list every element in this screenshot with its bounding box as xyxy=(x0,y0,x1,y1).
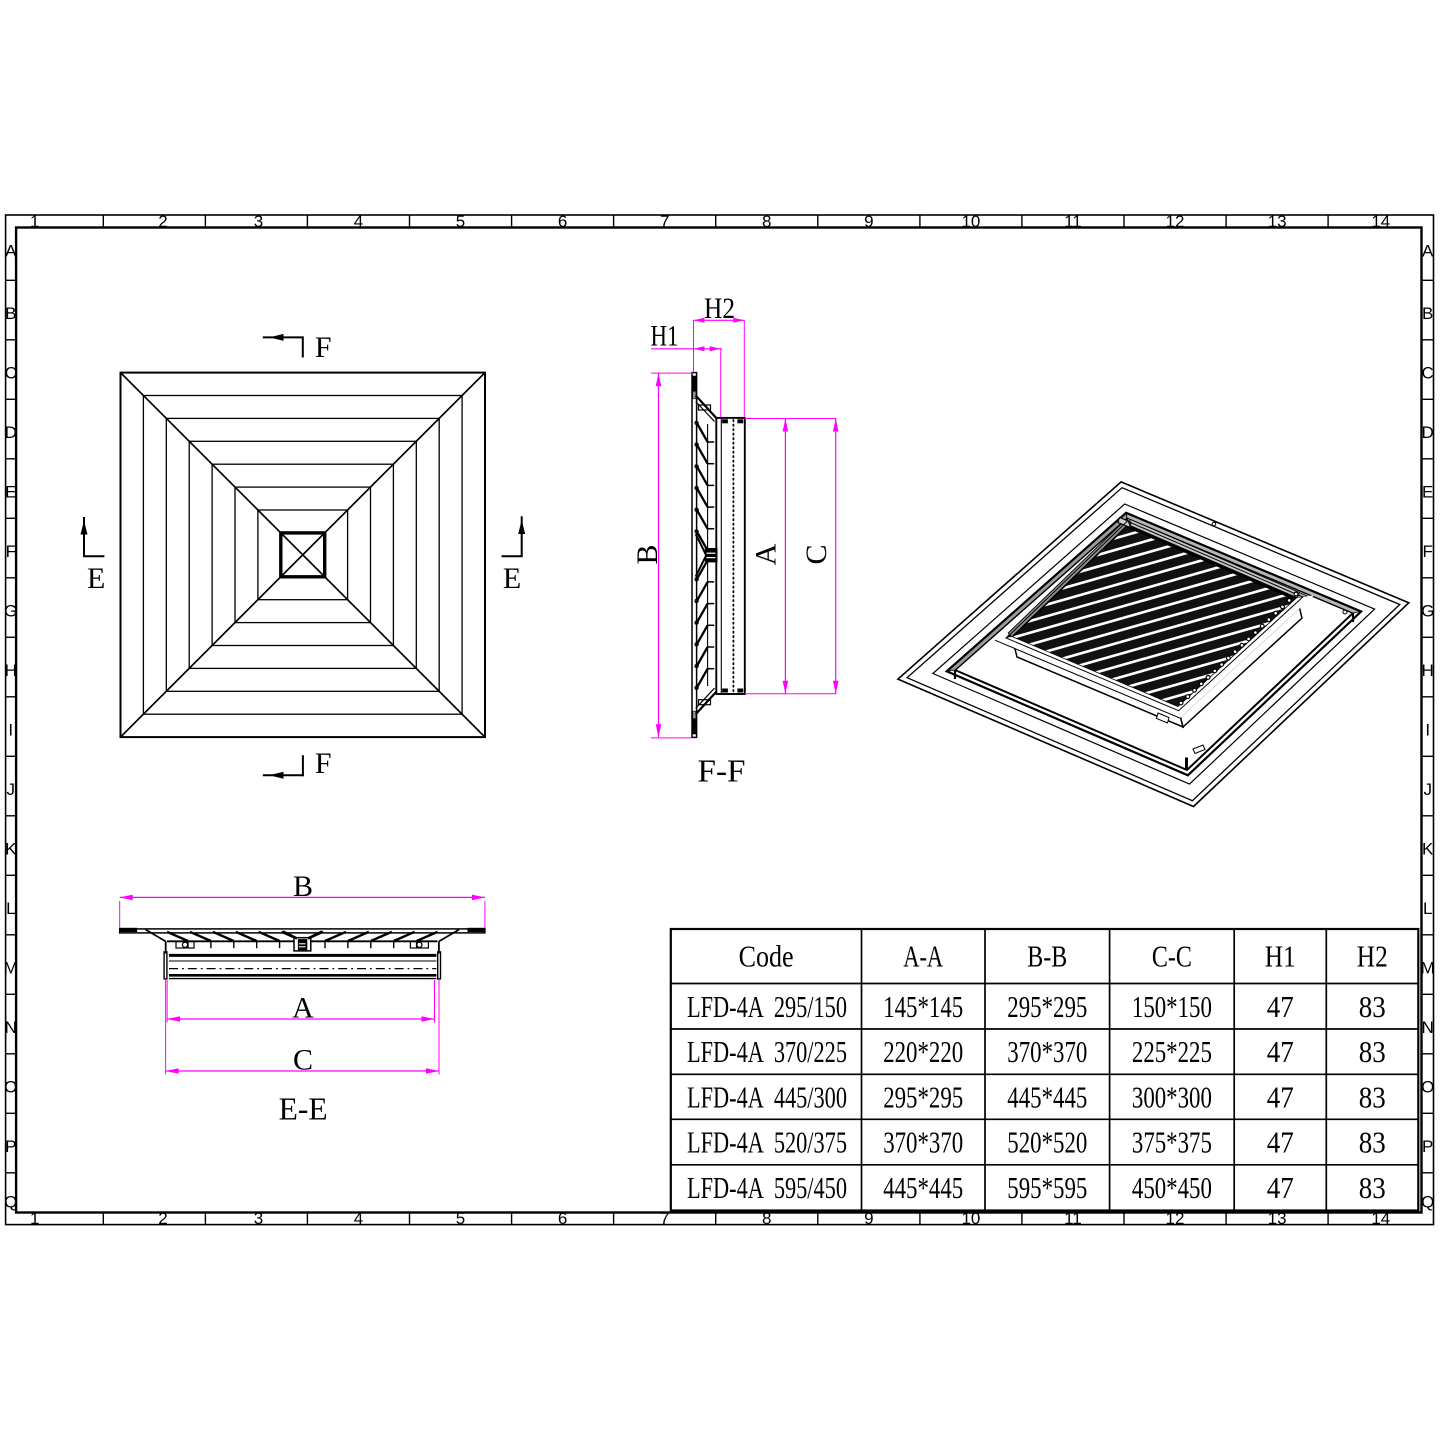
svg-text:P: P xyxy=(1422,1137,1433,1156)
svg-text:E: E xyxy=(503,562,521,595)
svg-text:450*450: 450*450 xyxy=(1132,1170,1212,1205)
svg-text:2: 2 xyxy=(158,1209,167,1228)
svg-text:E: E xyxy=(1422,483,1433,502)
svg-text:14: 14 xyxy=(1371,1209,1390,1228)
svg-text:83: 83 xyxy=(1359,1079,1386,1114)
svg-text:B: B xyxy=(5,304,16,323)
svg-text:6: 6 xyxy=(558,1209,567,1228)
svg-text:47: 47 xyxy=(1267,989,1294,1024)
svg-text:I: I xyxy=(1425,721,1430,740)
svg-text:B-B: B-B xyxy=(1027,939,1067,974)
svg-text:445*445: 445*445 xyxy=(1007,1079,1087,1114)
svg-text:LFD-4A 595/450: LFD-4A 595/450 xyxy=(687,1170,847,1205)
svg-text:H1: H1 xyxy=(651,320,679,353)
svg-text:B: B xyxy=(1422,304,1433,323)
svg-text:D: D xyxy=(5,423,17,442)
svg-text:370*370: 370*370 xyxy=(1007,1034,1087,1069)
svg-text:M: M xyxy=(4,959,18,978)
svg-text:LFD-4A 520/375: LFD-4A 520/375 xyxy=(687,1125,847,1160)
svg-text:N: N xyxy=(1422,1018,1434,1037)
svg-text:C: C xyxy=(5,364,17,383)
svg-text:10: 10 xyxy=(961,212,980,231)
svg-text:12: 12 xyxy=(1166,212,1185,231)
svg-text:F: F xyxy=(6,542,16,561)
svg-text:G: G xyxy=(4,602,17,621)
svg-text:E: E xyxy=(87,562,105,595)
svg-text:295*295: 295*295 xyxy=(1007,989,1087,1024)
svg-text:220*220: 220*220 xyxy=(883,1034,963,1069)
svg-text:A: A xyxy=(1422,242,1434,261)
svg-text:5: 5 xyxy=(456,212,465,231)
svg-text:I: I xyxy=(8,721,13,740)
svg-text:B: B xyxy=(631,544,664,564)
svg-text:3: 3 xyxy=(254,1209,263,1228)
svg-text:83: 83 xyxy=(1359,1170,1386,1205)
svg-text:6: 6 xyxy=(558,212,567,231)
svg-text:H2: H2 xyxy=(1357,939,1388,974)
svg-text:83: 83 xyxy=(1359,1125,1386,1160)
svg-text:M: M xyxy=(1421,959,1435,978)
svg-text:47: 47 xyxy=(1267,1125,1294,1160)
svg-text:11: 11 xyxy=(1064,212,1082,231)
svg-text:7: 7 xyxy=(660,212,669,231)
svg-text:9: 9 xyxy=(864,1209,873,1228)
svg-text:K: K xyxy=(5,840,17,859)
svg-text:L: L xyxy=(6,899,15,918)
svg-text:445*445: 445*445 xyxy=(883,1170,963,1205)
svg-text:4: 4 xyxy=(354,212,363,231)
svg-text:LFD-4A 370/225: LFD-4A 370/225 xyxy=(687,1034,847,1069)
svg-text:300*300: 300*300 xyxy=(1132,1079,1212,1114)
svg-text:A-A: A-A xyxy=(903,939,943,974)
svg-text:520*520: 520*520 xyxy=(1007,1125,1087,1160)
svg-text:370*370: 370*370 xyxy=(883,1125,963,1160)
svg-text:C: C xyxy=(1422,364,1434,383)
svg-text:145*145: 145*145 xyxy=(883,989,963,1024)
svg-text:10: 10 xyxy=(961,1209,980,1228)
svg-text:Q: Q xyxy=(1421,1193,1434,1212)
svg-text:C: C xyxy=(293,1044,313,1077)
svg-text:C: C xyxy=(800,544,833,564)
svg-text:13: 13 xyxy=(1268,212,1287,231)
svg-text:LFD-4A 445/300: LFD-4A 445/300 xyxy=(687,1079,847,1114)
svg-text:7: 7 xyxy=(660,1209,669,1228)
svg-text:F-F: F-F xyxy=(698,753,746,789)
svg-text:C-C: C-C xyxy=(1152,939,1192,974)
svg-text:B: B xyxy=(293,870,313,903)
svg-text:1: 1 xyxy=(30,212,39,231)
svg-text:47: 47 xyxy=(1267,1170,1294,1205)
svg-text:A: A xyxy=(5,242,17,261)
svg-text:F: F xyxy=(315,331,332,364)
svg-text:295*295: 295*295 xyxy=(883,1079,963,1114)
svg-text:G: G xyxy=(1421,602,1434,621)
svg-text:3: 3 xyxy=(254,212,263,231)
svg-text:O: O xyxy=(1421,1078,1434,1097)
svg-text:12: 12 xyxy=(1166,1209,1185,1228)
svg-text:9: 9 xyxy=(864,212,873,231)
svg-text:47: 47 xyxy=(1267,1034,1294,1069)
svg-text:47: 47 xyxy=(1267,1079,1294,1114)
svg-text:5: 5 xyxy=(456,1209,465,1228)
svg-text:D: D xyxy=(1422,423,1434,442)
svg-text:1: 1 xyxy=(30,1209,39,1228)
svg-text:2: 2 xyxy=(158,212,167,231)
svg-text:O: O xyxy=(4,1078,17,1097)
svg-text:K: K xyxy=(1422,840,1434,859)
svg-text:11: 11 xyxy=(1064,1209,1082,1228)
svg-text:A: A xyxy=(750,543,783,565)
svg-text:4: 4 xyxy=(354,1209,363,1228)
svg-text:H: H xyxy=(5,661,17,680)
svg-text:595*595: 595*595 xyxy=(1007,1170,1087,1205)
svg-text:8: 8 xyxy=(762,212,771,231)
svg-text:E-E: E-E xyxy=(279,1091,328,1127)
svg-text:LFD-4A 295/150: LFD-4A 295/150 xyxy=(687,989,847,1024)
svg-text:N: N xyxy=(5,1018,17,1037)
svg-text:8: 8 xyxy=(762,1209,771,1228)
svg-text:83: 83 xyxy=(1359,989,1386,1024)
svg-text:13: 13 xyxy=(1268,1209,1287,1228)
svg-text:83: 83 xyxy=(1359,1034,1386,1069)
svg-text:F: F xyxy=(1423,542,1433,561)
svg-text:J: J xyxy=(7,780,16,799)
svg-text:H2: H2 xyxy=(704,292,735,325)
svg-text:A: A xyxy=(292,992,314,1025)
svg-text:Q: Q xyxy=(4,1193,17,1212)
svg-text:14: 14 xyxy=(1371,212,1390,231)
svg-text:J: J xyxy=(1423,780,1432,799)
svg-text:F: F xyxy=(315,747,332,780)
svg-text:150*150: 150*150 xyxy=(1132,989,1212,1024)
svg-text:P: P xyxy=(5,1137,16,1156)
svg-text:H1: H1 xyxy=(1265,939,1296,974)
svg-text:L: L xyxy=(1423,899,1432,918)
svg-text:E: E xyxy=(5,483,16,502)
svg-text:Code: Code xyxy=(739,939,794,974)
svg-text:375*375: 375*375 xyxy=(1132,1125,1212,1160)
svg-text:225*225: 225*225 xyxy=(1132,1034,1212,1069)
svg-text:H: H xyxy=(1422,661,1434,680)
